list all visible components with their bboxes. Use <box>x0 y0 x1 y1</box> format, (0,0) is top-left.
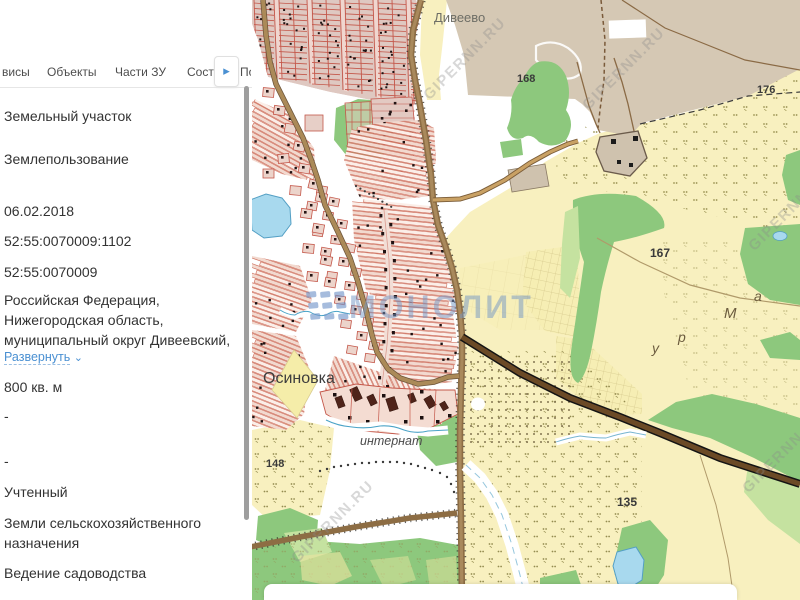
svg-text:М: М <box>724 305 737 322</box>
svg-text:176: 176 <box>757 84 775 96</box>
svg-text:167: 167 <box>650 246 670 260</box>
svg-text:Дивеево: Дивеево <box>434 10 485 25</box>
svg-text:МОНОЛИТ: МОНОЛИТ <box>349 289 534 325</box>
svg-text:Осиновка: Осиновка <box>263 370 335 387</box>
svg-text:168: 168 <box>517 73 535 85</box>
svg-text:интернат: интернат <box>360 434 422 448</box>
svg-text:135: 135 <box>617 495 637 509</box>
svg-text:а: а <box>754 288 762 304</box>
svg-text:148: 148 <box>266 458 284 470</box>
svg-text:р: р <box>677 329 686 345</box>
svg-text:у: у <box>651 340 660 356</box>
